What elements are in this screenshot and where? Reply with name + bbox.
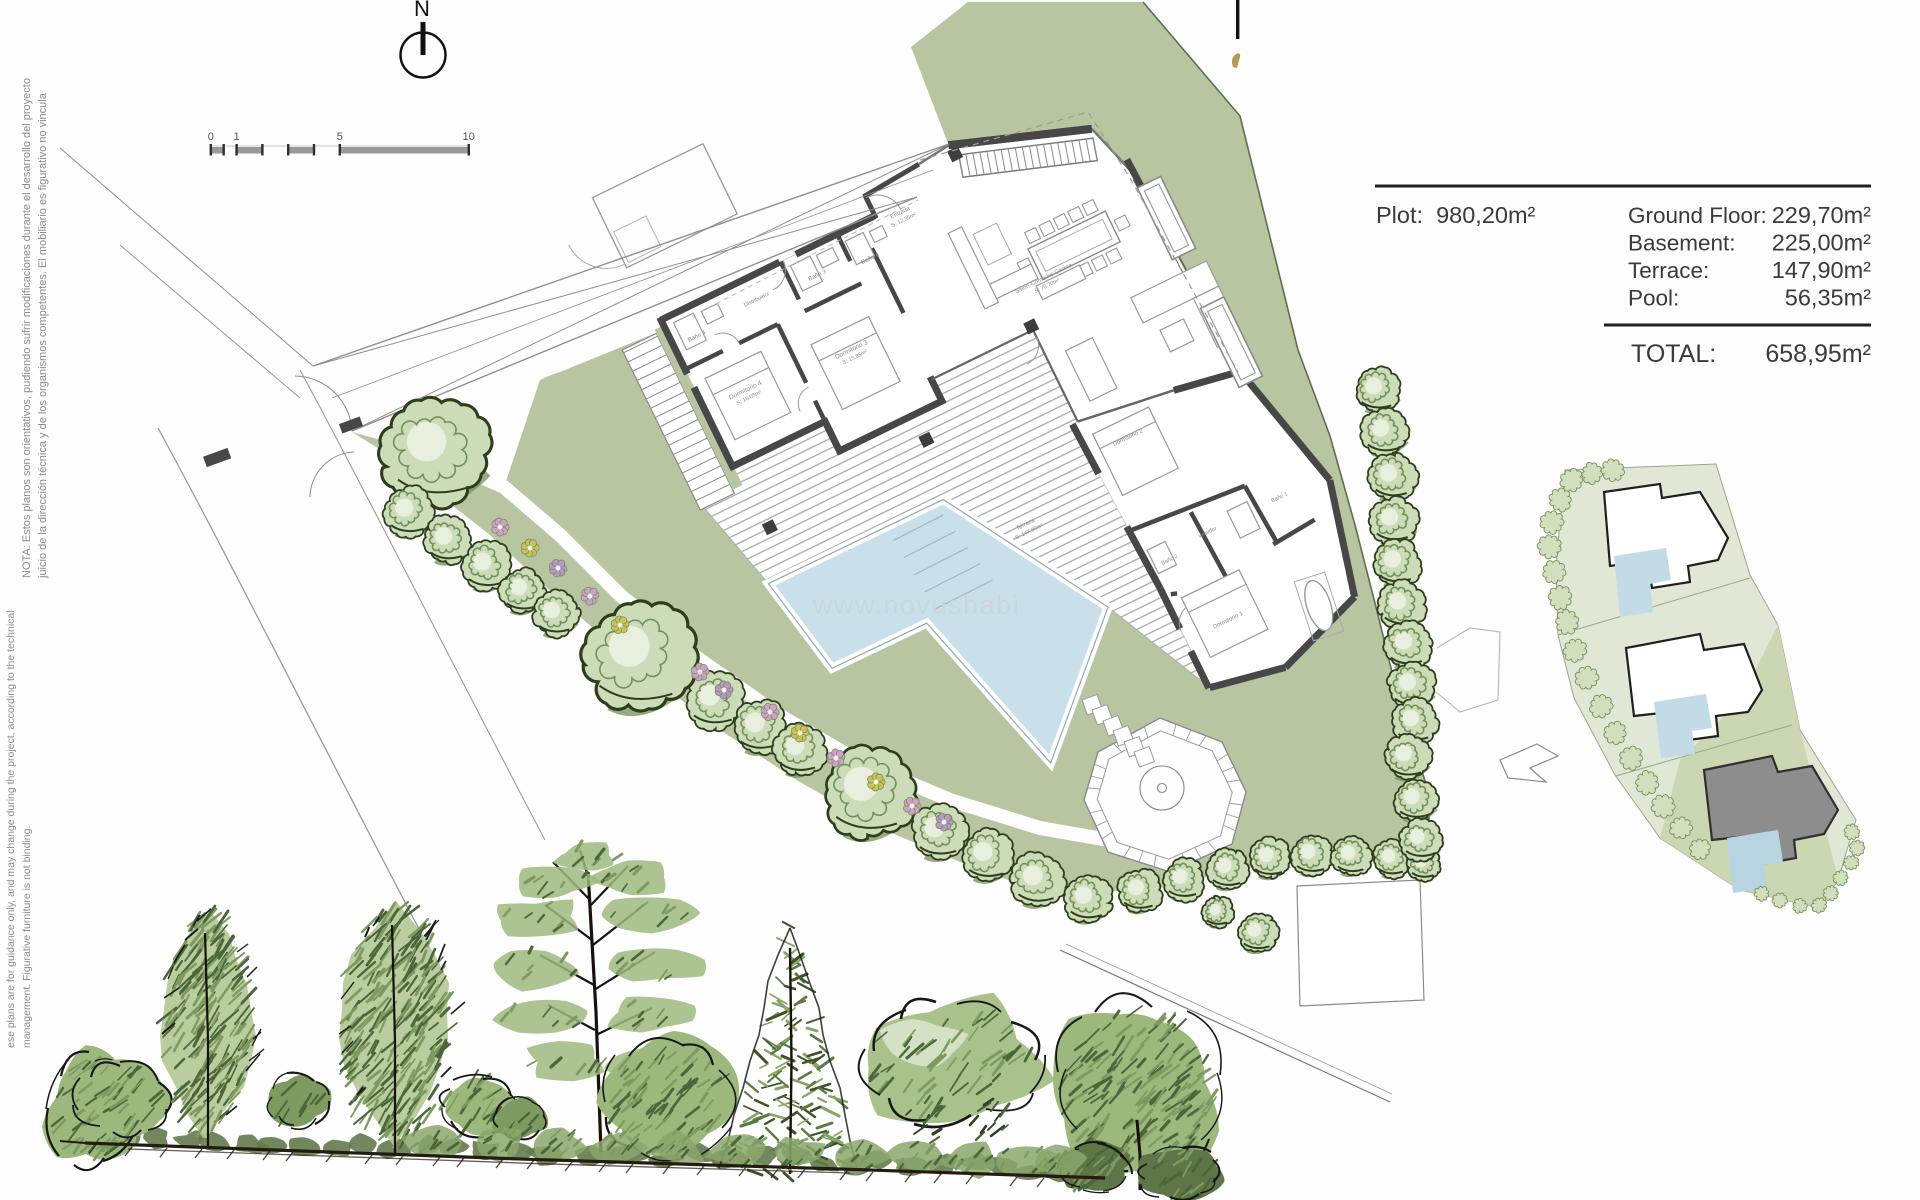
svg-text:Ground Floor:: Ground Floor:: [1628, 203, 1767, 228]
svg-text:225,00m²: 225,00m²: [1772, 230, 1871, 256]
svg-text:TOTAL:: TOTAL:: [1631, 340, 1716, 368]
svg-text:0: 0: [208, 131, 214, 143]
svg-text:www.novushabi: www.novushabi: [812, 590, 1020, 620]
svg-text:56,35m²: 56,35m²: [1785, 285, 1871, 311]
svg-text:juicio de la dirección técnica: juicio de la dirección técnica y de los …: [37, 92, 49, 579]
svg-text:NOTA: Estos planos son orienta: NOTA: Estos planos son orientativos, pud…: [21, 78, 33, 578]
svg-text:N: N: [414, 0, 430, 21]
svg-text:ese plans are for guidance onl: ese plans are for guidance only, and may…: [5, 610, 17, 1048]
svg-text:Terrace:: Terrace:: [1628, 258, 1709, 283]
svg-text:147,90m²: 147,90m²: [1772, 257, 1871, 283]
svg-text:5: 5: [337, 131, 343, 143]
svg-text:229,70m²: 229,70m²: [1772, 202, 1871, 228]
svg-text:10: 10: [463, 131, 475, 143]
svg-text:658,95m²: 658,95m²: [1765, 340, 1871, 368]
svg-text:Basement:: Basement:: [1628, 231, 1736, 256]
svg-text:1: 1: [234, 131, 240, 143]
svg-text:Plot: 980,20m²: Plot: 980,20m²: [1376, 202, 1536, 228]
svg-text:Pool:: Pool:: [1628, 286, 1679, 311]
svg-text:management. Figurative furnitu: management. Figurative furniture is not …: [21, 826, 33, 1048]
